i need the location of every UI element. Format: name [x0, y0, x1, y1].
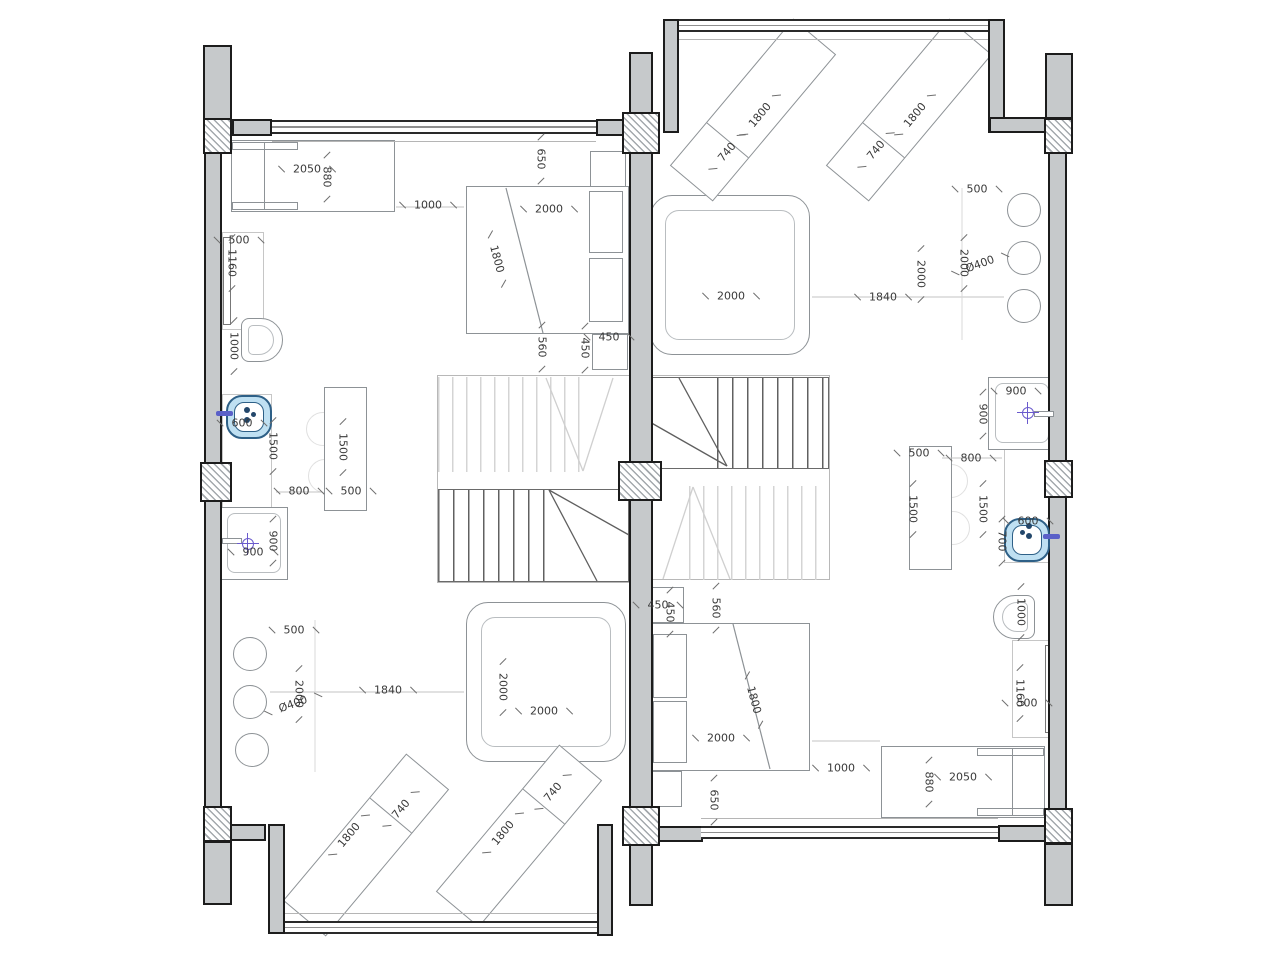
dimension-label: 2000	[691, 732, 751, 745]
dimension-label: 2000	[497, 657, 510, 717]
faucet-right-unit	[1043, 534, 1060, 539]
dimension-label: 1160	[1014, 663, 1027, 723]
dimension-label: 2000	[701, 290, 761, 303]
dimension-label: 1500	[337, 417, 350, 477]
column-top-right	[1044, 118, 1073, 154]
column-party-wall-top	[622, 112, 660, 154]
dimension-label: 880	[923, 756, 936, 809]
dimension-label: 560	[710, 582, 723, 635]
sink-tap-knob	[244, 407, 250, 413]
dimension-label: 500	[951, 183, 1004, 196]
wall-jog-bottom-right-left-unit	[597, 824, 613, 936]
kitchen-sink-bowl	[1012, 525, 1042, 555]
column-bottom-left	[203, 806, 232, 842]
dimension-label: 500	[893, 447, 946, 460]
wall-pier-bottom-b2	[998, 825, 1046, 842]
dimension-label: 800	[273, 485, 326, 498]
dimension-label: 450	[632, 599, 685, 612]
window-left-unit-bottom	[285, 921, 597, 934]
dimension-label: 1840	[853, 291, 913, 304]
window-right-unit-bottom	[701, 826, 998, 839]
dimension-label: 500	[1001, 697, 1054, 710]
dimension-label: 1160	[226, 233, 239, 293]
dimension-label: 900	[990, 385, 1043, 398]
dimension-label: 1000	[811, 762, 871, 775]
window-sill	[701, 818, 998, 819]
wall-jog-top-left-right-unit	[663, 19, 679, 133]
dimension-label: 2000	[514, 705, 574, 718]
dimension-label: 1000	[1015, 582, 1028, 642]
dimension-label: 650	[535, 133, 548, 186]
dimension-label: 450	[579, 322, 592, 375]
dimension-label: 1000	[228, 316, 241, 376]
window-sill	[679, 39, 988, 40]
pier-top-left	[203, 45, 232, 120]
dimension-label: 1000	[398, 199, 458, 212]
pier-top-right	[1045, 53, 1073, 119]
column-top-left	[203, 118, 232, 154]
dimension-label: 560	[536, 321, 549, 374]
dimension-label: 500	[268, 624, 321, 637]
dimension-label: 2050	[933, 771, 993, 784]
dimension-label: 2000	[915, 244, 928, 304]
dimension-label: 450	[664, 586, 677, 639]
dimension-label: 1840	[358, 684, 418, 697]
pier-bottom-left	[203, 841, 232, 905]
wall-pier-top-a1	[232, 119, 272, 136]
sink-tap-knob	[1020, 530, 1025, 535]
column-middle-left	[200, 462, 232, 502]
dimension-label: 1500	[977, 479, 990, 539]
window-sill	[285, 913, 597, 914]
sofa-backrest-line	[264, 142, 265, 210]
dimension-label: 900	[977, 388, 990, 441]
sink-tap-knob	[1026, 533, 1032, 539]
wall-jog-bottom-left	[268, 824, 285, 934]
wall-arm-top-right	[989, 117, 1047, 133]
dimension-label: 1500	[267, 416, 280, 476]
pier-bottom-right	[1044, 843, 1073, 906]
dimension-label: 600	[216, 417, 269, 430]
dimension-label: 800	[945, 452, 998, 465]
dimension-label: 500	[213, 234, 266, 247]
dimension-label: 650	[708, 774, 721, 827]
column-party-wall-middle	[618, 461, 662, 501]
dimension-label: 900	[267, 515, 280, 568]
window-right-unit-top	[679, 19, 988, 32]
shower-drain-crosshair-right-unit	[1017, 402, 1039, 424]
wall-arm-bottom-party	[653, 826, 703, 842]
dimension-label: 450	[583, 331, 636, 344]
column-party-wall-bottom	[622, 806, 660, 846]
faucet-left-unit	[216, 411, 233, 416]
dimension-label: 880	[321, 151, 334, 204]
dimension-label: 500	[325, 485, 378, 498]
column-bottom-right	[1044, 808, 1073, 844]
dimension-label: 1500	[907, 479, 920, 539]
dimension-label: 600	[1002, 515, 1055, 528]
wall-jog-top-right	[988, 19, 1005, 133]
floor-plan-canvas: 2050880100020001800650560450450500116010…	[0, 0, 1280, 960]
dimension-label: 2000	[519, 203, 579, 216]
column-middle-right	[1044, 460, 1073, 498]
sofa-backrest-line	[1012, 748, 1013, 816]
